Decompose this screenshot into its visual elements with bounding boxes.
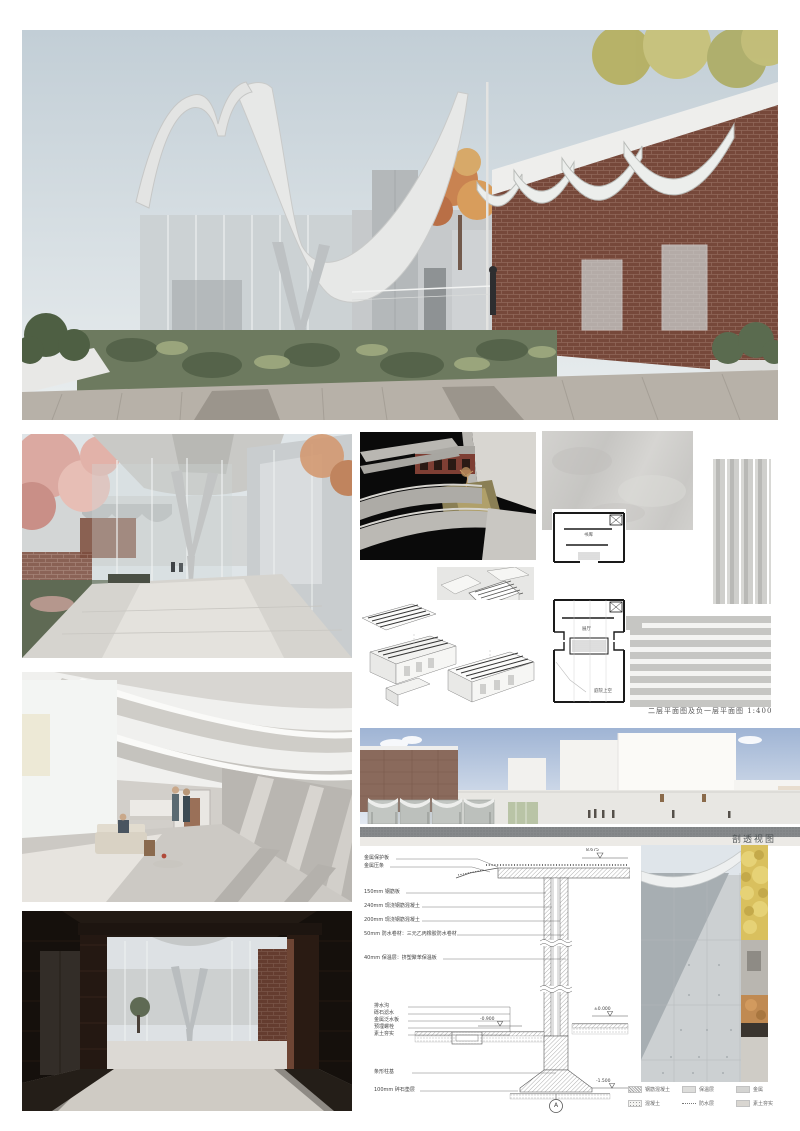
wall-detail-graphic [641, 845, 768, 1082]
elevation-floor-left: -0.900 [480, 1018, 495, 1023]
legend-swatch-solid [682, 1086, 696, 1093]
legend-label: 素土夯实 [753, 1100, 773, 1107]
plan-upper-room-label: 书库 [584, 534, 593, 539]
model-photo-graphic [360, 432, 536, 560]
roof-plan-vertical-strip [711, 459, 771, 604]
legend-swatch-earth [736, 1100, 750, 1107]
section-graphic [360, 728, 800, 846]
model-photo [360, 432, 536, 560]
detail-callout: 条形柱基 [374, 1070, 394, 1075]
plan-lower-graphic [552, 594, 626, 706]
legend-item: 金属 [736, 1086, 788, 1093]
detail-callout: 200mm 现浇钢筋混凝土 [364, 918, 420, 923]
axonometric-exploded-drawing [360, 600, 537, 713]
interior-graphic [22, 672, 352, 902]
legend-item: 混凝土 [628, 1100, 680, 1107]
detail-callout: 砾石滤水 [374, 1011, 394, 1016]
legend-label: 混凝土 [645, 1100, 660, 1107]
plan-caption: 二层平面图及负一层平面图 1:400 [648, 706, 772, 716]
legend-swatch-dots [628, 1100, 642, 1107]
presentation-board: 书库 [0, 0, 800, 1131]
corridor-graphic [22, 434, 352, 658]
detail-callout: 金属保护板 [364, 856, 389, 861]
legend-swatch-dash [682, 1103, 696, 1104]
legend-label: 保温层 [699, 1086, 714, 1093]
detail-callout: 50mm 防水卷材：三元乙丙橡胶防水卷材 [364, 932, 457, 937]
legend-label: 防水层 [699, 1100, 714, 1107]
detail-callout: 素土夯实 [374, 1032, 394, 1037]
detail-callout: 150mm 钢筋板 [364, 890, 400, 895]
brick-archway-rendering [22, 911, 352, 1111]
floor-plan-upper: 书库 [552, 509, 626, 566]
materials-legend: 钢筋混凝土 保温层 金属 混凝土 防水层 素土夯实 [628, 1082, 788, 1110]
section-perspective-rendering: 剖透视图 [360, 728, 800, 846]
hero-rendering-graphic [22, 30, 778, 420]
axon-large-graphic [360, 600, 537, 713]
detail-callout: 预埋螺栓 [374, 1025, 394, 1030]
legend-label: 金属 [753, 1086, 763, 1093]
construction-detail-drawing: 金属保护板 金属压条 150mm 钢筋板 240mm 现浇钢筋混凝土 200mm… [360, 848, 630, 1116]
detail-callout: 100mm 碎石垫层 [374, 1088, 415, 1093]
plan-void-label: 庭院上空 [594, 690, 612, 695]
plan-lower-room-label: 展厅 [582, 628, 591, 633]
legend-item: 保温层 [682, 1086, 734, 1093]
roof-plan-connector [626, 616, 642, 630]
detail-bubble-label: A [551, 1103, 561, 1109]
detail-callout: 40mm 保温层：挤塑聚苯保温板 [364, 956, 437, 961]
roof-plan-horizontal-strip [630, 616, 771, 707]
wall-detail-rendering [641, 845, 768, 1082]
elevation-roof: 8.675 [586, 849, 599, 854]
legend-swatch-hatch [628, 1086, 642, 1093]
legend-swatch-metal [736, 1086, 750, 1093]
detail-callout: 排水沟 [374, 1004, 389, 1009]
archway-graphic [22, 911, 352, 1111]
legend-item: 素土夯实 [736, 1100, 788, 1107]
legend-item: 防水层 [682, 1100, 734, 1107]
floor-plan-lower: 展厅 庭院上空 [552, 594, 626, 706]
interior-rendering [22, 672, 352, 902]
detail-callout: 金属泛水板 [374, 1018, 399, 1023]
detail-callout: 金属压条 [364, 864, 384, 869]
courtyard-corridor-rendering [22, 434, 352, 658]
legend-label: 钢筋混凝土 [645, 1086, 670, 1093]
detail-drawing-graphic [360, 848, 630, 1116]
elevation-base: -1.500 [596, 1080, 611, 1085]
elevation-floor-right: ±0.000 [594, 1008, 611, 1013]
legend-item: 钢筋混凝土 [628, 1086, 680, 1093]
hero-courtyard-rendering [22, 30, 778, 420]
detail-callout: 240mm 现浇钢筋混凝土 [364, 904, 420, 909]
section-label: 剖透视图 [732, 832, 776, 845]
